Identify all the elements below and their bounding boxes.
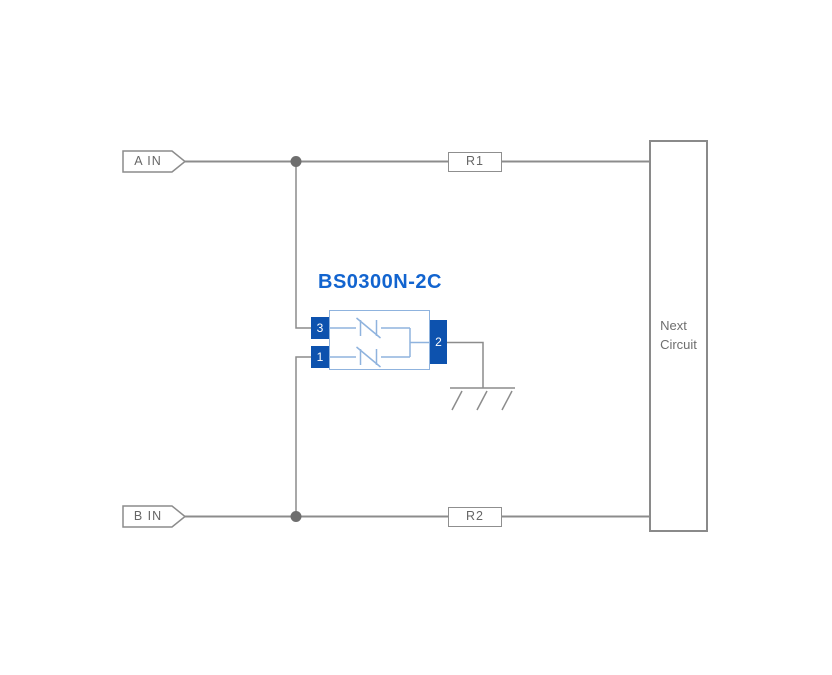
input-b-label: B IN xyxy=(123,505,173,527)
resistor-r1: R1 xyxy=(448,152,502,172)
wire-pin2-to-ground xyxy=(447,343,483,389)
component-pin-3: 3 xyxy=(311,317,329,339)
component-pin-2: 2 xyxy=(430,320,447,364)
component-body-outline xyxy=(329,310,430,370)
wire-branch-b-to-pin1 xyxy=(296,357,311,517)
component-pin-1: 1 xyxy=(311,346,329,368)
chassis-ground-icon xyxy=(450,388,515,410)
wire-branch-a-to-pin3 xyxy=(296,162,311,329)
junction-dot-top xyxy=(291,156,302,167)
resistor-r2: R2 xyxy=(448,507,502,527)
component-name-label: BS0300N-2C xyxy=(318,271,442,294)
next-circuit-line2: Circuit xyxy=(660,336,697,355)
next-circuit-line1: Next xyxy=(660,317,697,336)
next-circuit-box: Next Circuit xyxy=(649,140,708,532)
next-circuit-label: Next Circuit xyxy=(660,317,697,355)
circuit-diagram: A IN B IN R1 R2 Next Circuit BS0300N-2C … xyxy=(0,0,832,675)
junction-dot-bottom xyxy=(291,511,302,522)
input-a-label: A IN xyxy=(123,150,173,172)
